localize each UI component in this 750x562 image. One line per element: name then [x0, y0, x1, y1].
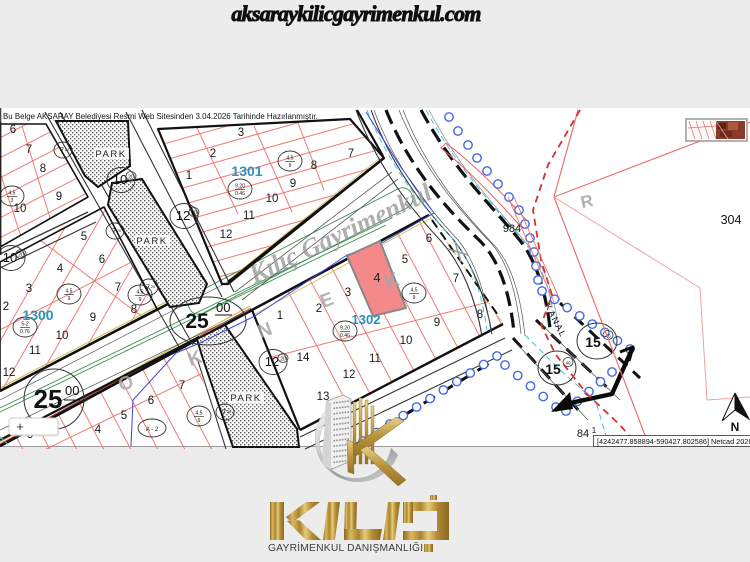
- svg-text:4: 4: [57, 263, 64, 275]
- svg-text:10: 10: [56, 330, 69, 342]
- svg-text:N: N: [731, 420, 740, 434]
- svg-text:12: 12: [220, 229, 233, 241]
- svg-text:1302: 1302: [352, 312, 381, 327]
- svg-text:25: 25: [34, 384, 63, 414]
- svg-text:984: 984: [503, 223, 521, 235]
- svg-text:4,5: 4,5: [137, 290, 144, 296]
- svg-text:PARK: PARK: [136, 236, 167, 247]
- svg-text:1: 1: [186, 170, 192, 182]
- svg-text:1301: 1301: [231, 163, 262, 179]
- svg-text:8: 8: [40, 163, 46, 175]
- svg-text:20: 20: [128, 175, 134, 181]
- svg-text:4,5: 4,5: [287, 156, 294, 162]
- svg-text:7: 7: [222, 408, 226, 417]
- svg-text:9: 9: [56, 191, 62, 203]
- svg-text:7: 7: [453, 273, 459, 285]
- svg-text:7: 7: [60, 146, 64, 155]
- svg-text:10: 10: [113, 172, 127, 187]
- svg-text:Bu Belge AKSARAY Belediyesi Re: Bu Belge AKSARAY Belediyesi Resmi Web Si…: [3, 112, 318, 121]
- svg-text:3: 3: [238, 127, 244, 139]
- svg-text:PARK: PARK: [230, 393, 261, 404]
- svg-text:3: 3: [345, 287, 351, 299]
- svg-text:15: 15: [585, 334, 601, 350]
- svg-text:00: 00: [65, 383, 79, 398]
- svg-text:PARK: PARK: [95, 149, 126, 160]
- svg-text:7: 7: [179, 380, 185, 392]
- svg-text:14: 14: [297, 352, 310, 364]
- svg-text:10: 10: [400, 335, 413, 347]
- svg-text:0.76: 0.76: [20, 329, 30, 335]
- svg-text:10: 10: [266, 193, 279, 205]
- svg-text:4: 4: [373, 270, 380, 285]
- svg-text:20: 20: [227, 409, 232, 414]
- svg-text:5: 5: [81, 231, 87, 243]
- svg-text:0.46: 0.46: [340, 333, 350, 339]
- svg-text:0.46: 0.46: [235, 191, 245, 197]
- svg-text:11: 11: [369, 353, 381, 365]
- svg-text:[4242477.858894-590427.802586]: [4242477.858894-590427.802586] Netcad 20…: [597, 437, 750, 446]
- svg-text:A - 2: A - 2: [146, 427, 159, 433]
- svg-text:9: 9: [289, 163, 292, 169]
- svg-text:5: 5: [121, 410, 127, 422]
- svg-text:8: 8: [311, 160, 317, 172]
- svg-text:84: 84: [577, 428, 589, 440]
- svg-text:8: 8: [131, 304, 137, 316]
- svg-text:9: 9: [434, 317, 440, 329]
- svg-text:7: 7: [115, 282, 121, 294]
- svg-text:40: 40: [565, 361, 571, 366]
- svg-text:3: 3: [11, 198, 14, 204]
- svg-text:00: 00: [216, 300, 230, 315]
- svg-text:4,5: 4,5: [196, 411, 203, 417]
- svg-text:7: 7: [348, 148, 354, 160]
- svg-text:3: 3: [26, 283, 32, 295]
- svg-text:7: 7: [26, 144, 32, 156]
- svg-text:1300: 1300: [22, 307, 53, 323]
- svg-text:9: 9: [68, 296, 71, 302]
- svg-text:5: 5: [402, 254, 408, 266]
- svg-text:GAYRİMENKUL DANIŞMANLIĞI: GAYRİMENKUL DANIŞMANLIĞI: [268, 541, 423, 554]
- svg-text:9: 9: [290, 178, 296, 190]
- svg-text:11: 11: [243, 210, 255, 222]
- svg-text:6: 6: [10, 124, 16, 136]
- svg-text:10: 10: [14, 203, 27, 215]
- svg-text:6: 6: [426, 233, 432, 245]
- svg-text:12: 12: [265, 354, 279, 369]
- svg-text:1: 1: [592, 426, 597, 435]
- svg-text:+: +: [16, 419, 24, 434]
- svg-text:6: 6: [148, 395, 154, 407]
- svg-text:20: 20: [280, 357, 286, 363]
- svg-text:12: 12: [3, 367, 16, 379]
- svg-text:4,5: 4,5: [411, 288, 418, 294]
- svg-text:20: 20: [65, 147, 70, 152]
- svg-text:20: 20: [117, 228, 122, 233]
- svg-text:4,5: 4,5: [66, 289, 73, 295]
- svg-text:9: 9: [139, 297, 142, 303]
- svg-text:304: 304: [721, 213, 742, 227]
- svg-text:11: 11: [29, 345, 41, 357]
- svg-text:7: 7: [112, 227, 116, 236]
- svg-text:9.20: 9.20: [235, 184, 245, 190]
- svg-text:4: 4: [95, 424, 102, 436]
- svg-text:10: 10: [3, 250, 17, 265]
- svg-text:4,5: 4,5: [9, 191, 16, 197]
- svg-text:2: 2: [210, 148, 216, 160]
- svg-text:6: 6: [99, 254, 105, 266]
- svg-text:8: 8: [477, 309, 483, 321]
- svg-text:12: 12: [176, 208, 190, 223]
- svg-text:2: 2: [316, 303, 322, 315]
- svg-text:1: 1: [277, 310, 283, 322]
- svg-text:2: 2: [3, 301, 9, 313]
- svg-text:12: 12: [343, 369, 356, 381]
- svg-text:9: 9: [198, 418, 201, 424]
- svg-text:25: 25: [185, 310, 209, 333]
- svg-text:9: 9: [90, 312, 96, 324]
- svg-text:9.20: 9.20: [340, 326, 350, 332]
- svg-text:9: 9: [413, 295, 416, 301]
- svg-text:15: 15: [545, 361, 561, 377]
- svg-text:20: 20: [191, 211, 197, 217]
- svg-text:20: 20: [151, 284, 156, 289]
- svg-text:20: 20: [18, 253, 24, 259]
